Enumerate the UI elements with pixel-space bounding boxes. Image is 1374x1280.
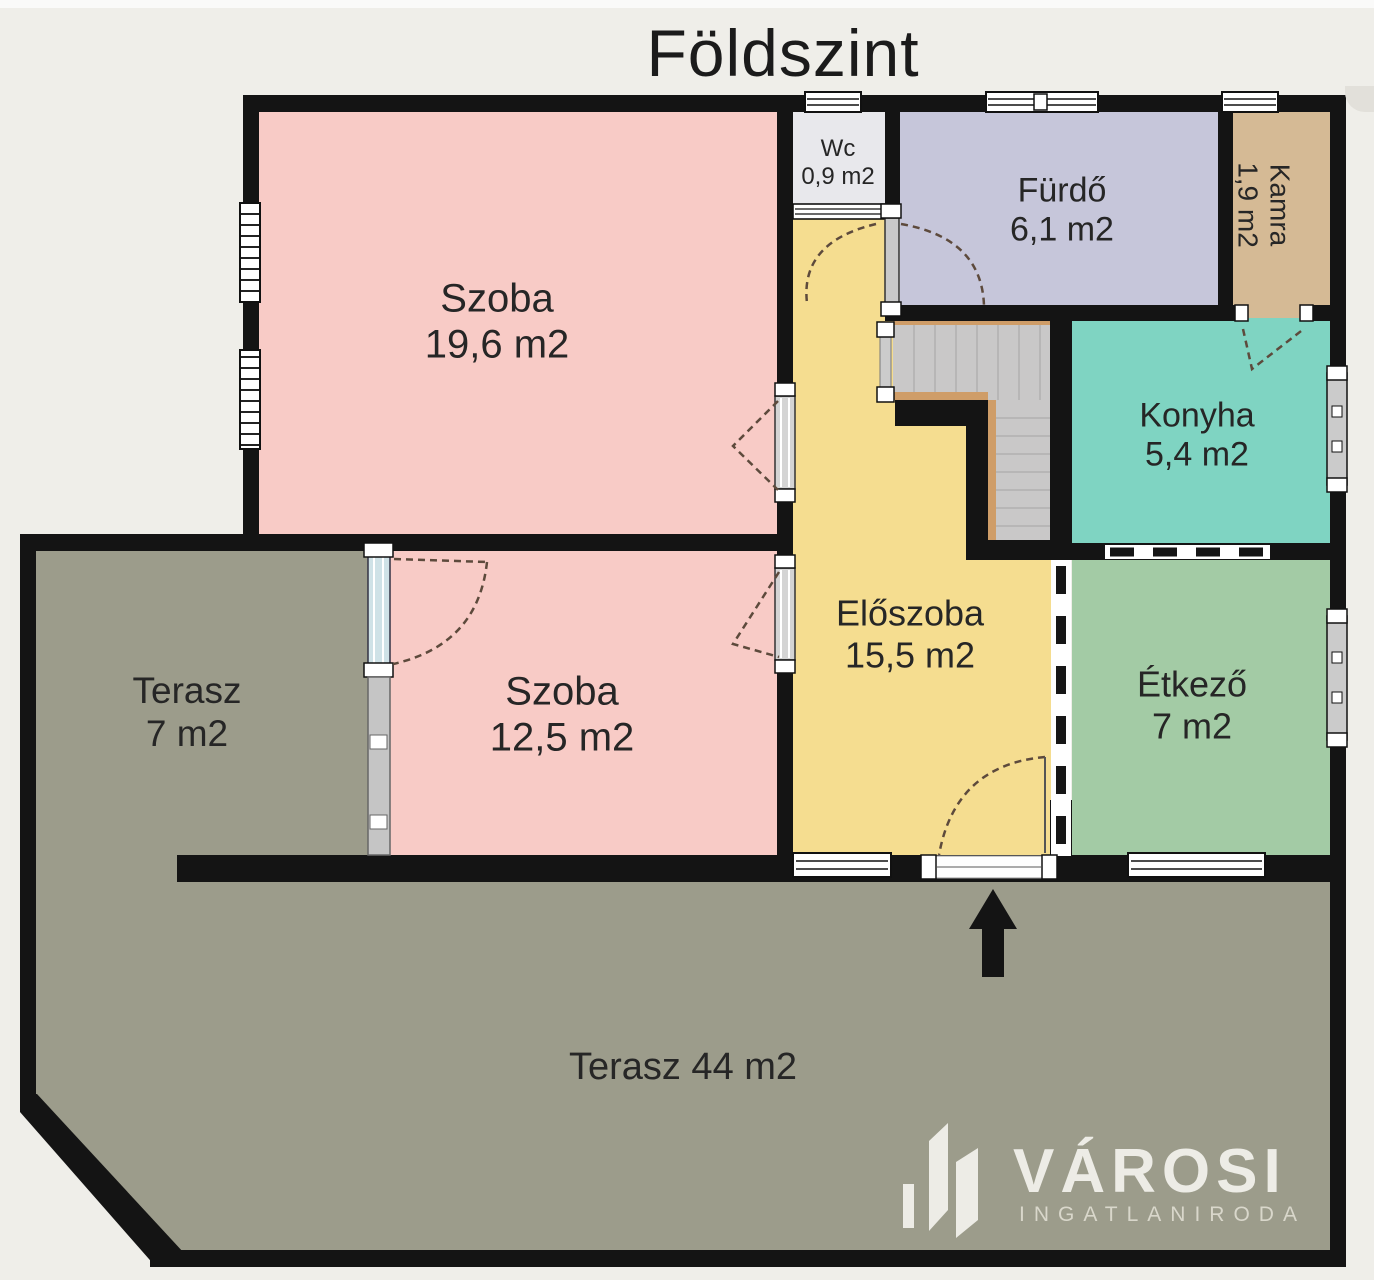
room-eloszoba-mid — [881, 426, 966, 560]
room-name: Wc — [801, 135, 874, 163]
room-name: Étkező — [1137, 663, 1247, 705]
dashed-divider-eloszoba-etkezo — [1051, 560, 1071, 856]
entrance-threshold — [921, 855, 1057, 879]
window-top-wc — [805, 92, 861, 112]
terrace-divider-window — [364, 543, 393, 855]
floor-plan: Földszint Szoba 19,6 m2 Wc 0,9 m2 Fürdő … — [0, 0, 1374, 1280]
window-top-kamra — [1222, 92, 1278, 112]
label-etkezo: Étkező 7 m2 — [1137, 663, 1247, 747]
room-name: Kamra — [1263, 162, 1295, 248]
label-szoba12: Szoba 12,5 m2 — [490, 669, 635, 762]
label-kamra: Kamra 1,9 m2 — [1231, 162, 1296, 248]
label-eloszoba: Előszoba 15,5 m2 — [836, 592, 984, 676]
window-right-etkezo — [1327, 609, 1347, 747]
room-name: Terasz — [133, 670, 242, 713]
room-area: 0,9 m2 — [801, 163, 874, 191]
room-name: Konyha — [1139, 397, 1254, 436]
label-furdo: Fürdő 6,1 m2 — [1010, 172, 1114, 251]
room-name: Terasz 44 m2 — [569, 1045, 797, 1089]
stairs-left-frame — [877, 322, 894, 402]
room-name: Előszoba — [836, 592, 984, 634]
label-terasz-large: Terasz 44 m2 — [569, 1045, 797, 1089]
window-left-2 — [240, 350, 260, 449]
wc-threshold — [793, 204, 885, 219]
window-top-furdo — [986, 92, 1098, 112]
room-area: 1,9 m2 — [1231, 162, 1263, 248]
room-area: 15,5 m2 — [836, 634, 984, 676]
room-area: 12,5 m2 — [490, 715, 635, 761]
room-name: Szoba — [425, 276, 570, 322]
window-etkezo-bottom — [1128, 853, 1265, 877]
opening-konyha-etkezo — [1105, 545, 1270, 559]
window-eloszoba-bottom — [793, 853, 891, 877]
window-left-1 — [240, 203, 260, 302]
room-area: 5,4 m2 — [1139, 436, 1254, 475]
glazed-door-szoba19 — [775, 383, 795, 502]
room-area: 7 m2 — [1137, 705, 1247, 747]
label-szoba19: Szoba 19,6 m2 — [425, 276, 570, 369]
room-area: 7 m2 — [133, 713, 242, 756]
logo-subtitle: INGATLANIRODA — [1019, 1203, 1306, 1227]
room-area: 19,6 m2 — [425, 322, 570, 368]
logo-name: VÁROSI — [1013, 1136, 1287, 1207]
label-konyha: Konyha 5,4 m2 — [1139, 397, 1254, 476]
room-area: 6,1 m2 — [1010, 211, 1114, 250]
window-right-konyha — [1327, 366, 1347, 492]
room-name: Fürdő — [1010, 172, 1114, 211]
page-title: Földszint — [646, 15, 919, 91]
label-wc: Wc 0,9 m2 — [801, 135, 874, 191]
label-terasz-small: Terasz 7 m2 — [133, 670, 242, 756]
room-name: Szoba — [490, 669, 635, 715]
